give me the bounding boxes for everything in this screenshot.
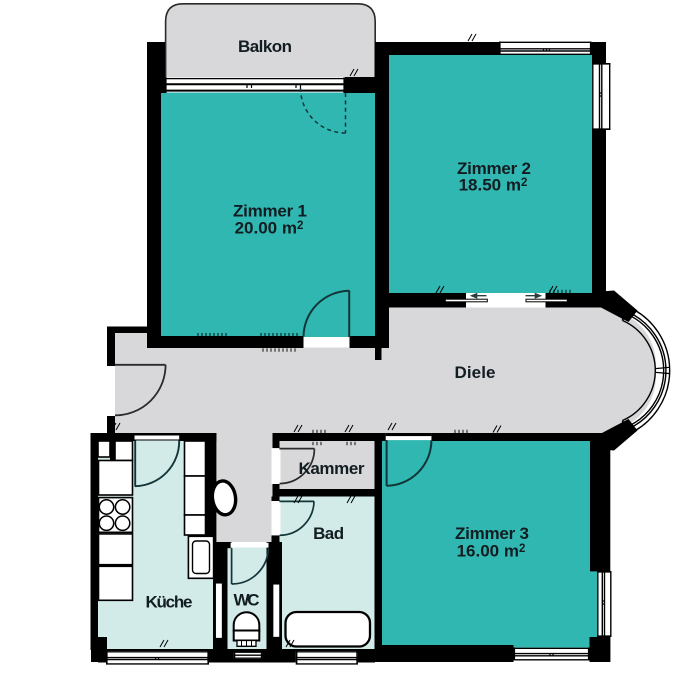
svg-text:20.00 m2: 20.00 m2 bbox=[235, 219, 304, 238]
svg-text:Diele: Diele bbox=[455, 363, 496, 382]
svg-text:Zimmer 3: Zimmer 3 bbox=[455, 524, 529, 543]
svg-text:Zimmer 1: Zimmer 1 bbox=[233, 201, 307, 220]
svg-text:18.50 m2: 18.50 m2 bbox=[459, 176, 528, 195]
svg-text:WC: WC bbox=[234, 591, 260, 610]
svg-text:Bad: Bad bbox=[313, 524, 344, 543]
svg-text:Kammer: Kammer bbox=[299, 459, 365, 478]
svg-text:Balkon: Balkon bbox=[238, 37, 292, 56]
svg-text:Küche: Küche bbox=[146, 593, 193, 612]
svg-text:16.00 m2: 16.00 m2 bbox=[457, 542, 526, 561]
